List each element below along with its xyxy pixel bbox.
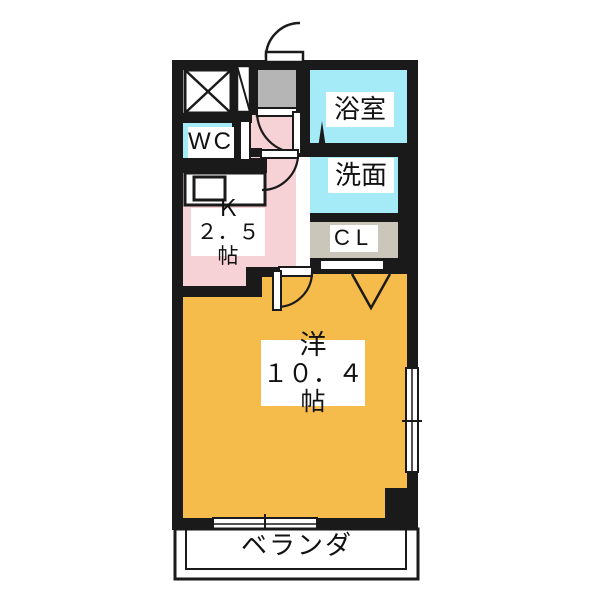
veranda-label: ベランダ bbox=[213, 530, 381, 562]
wall-below-wc bbox=[183, 158, 267, 173]
bathroom-label: 浴室 bbox=[326, 92, 394, 127]
entrance-door bbox=[266, 23, 303, 62]
main-room-label-name: 洋 bbox=[300, 330, 327, 360]
kitchen-area-lower bbox=[183, 267, 246, 286]
washroom-label-text: 洗面 bbox=[335, 161, 387, 190]
washroom-door-panel-open bbox=[257, 108, 297, 116]
washroom-label: 洗面 bbox=[328, 158, 394, 193]
window-right bbox=[402, 368, 422, 472]
kitchen-label-size: ２．５帖 bbox=[191, 221, 265, 268]
main-room-label: 洋 １０．４帖 bbox=[261, 340, 365, 406]
main-room-door-threshold bbox=[279, 267, 312, 276]
kitchen-label: Ｋ ２．５帖 bbox=[191, 208, 265, 256]
bathroom-label-text: 浴室 bbox=[334, 95, 386, 124]
toilet-label: WC bbox=[188, 127, 234, 158]
wc-door bbox=[240, 121, 250, 160]
washroom-door-panel bbox=[293, 112, 301, 154]
closet-label-text: CL bbox=[334, 226, 374, 251]
wall-washroom-closet bbox=[310, 213, 400, 222]
floor-plan-drawing bbox=[0, 0, 600, 600]
wall-corner-notch bbox=[385, 488, 418, 530]
entrance-door-panel bbox=[266, 52, 303, 62]
shaft-box bbox=[237, 66, 250, 112]
main-room-door-panel bbox=[273, 271, 281, 310]
floor-plan-image: 浴室 WC 洗面 CL Ｋ ２．５帖 洋 １０．４帖 ベランダ bbox=[0, 0, 600, 600]
pipe-space bbox=[185, 70, 231, 113]
kitchen-label-name: Ｋ bbox=[217, 196, 240, 222]
main-room-label-size: １０．４帖 bbox=[261, 360, 365, 416]
kitchen-door-panel bbox=[261, 150, 298, 158]
toilet-label-text: WC bbox=[188, 129, 234, 156]
wall-kitchen-bottom bbox=[172, 286, 252, 297]
closet-label: CL bbox=[330, 225, 378, 252]
veranda-label-text: ベランダ bbox=[241, 531, 353, 560]
wall-right-filler bbox=[398, 143, 410, 274]
closet-door-panel bbox=[320, 260, 384, 270]
